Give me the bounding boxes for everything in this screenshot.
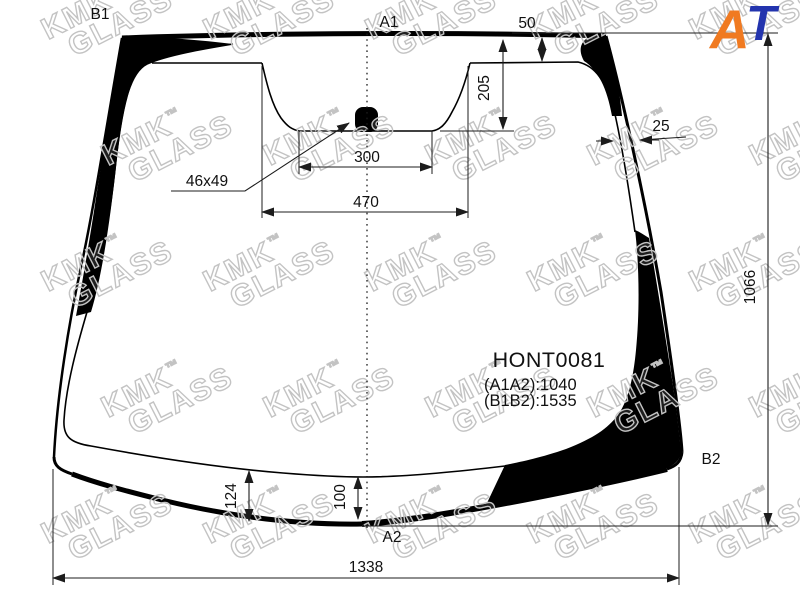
part-code: HONT0081: [493, 348, 606, 372]
dim-205: 205: [476, 75, 493, 101]
dim-124: 124: [223, 483, 240, 509]
dim-25: 25: [652, 118, 669, 135]
part-spec-b1b2: (B1B2):1535: [484, 392, 577, 410]
dim-50: 50: [518, 15, 536, 32]
at-logo-letter-t: T: [746, 0, 780, 51]
dim-300: 300: [354, 149, 380, 166]
label-a1: A1: [380, 14, 399, 31]
dim-1066: 1066: [742, 270, 759, 304]
label-b2: B2: [702, 451, 721, 468]
dim-1338: 1338: [349, 559, 383, 576]
dim-46x49: 46x49: [186, 173, 228, 190]
at-logo-letter-a: A: [708, 0, 750, 60]
label-b1: B1: [91, 6, 110, 23]
dim-100: 100: [332, 484, 349, 510]
windshield-diagram-page: KMK™ GLASS: [0, 0, 800, 600]
dim-470: 470: [353, 194, 379, 211]
windshield-diagram: KMK™ GLASS: [0, 0, 800, 600]
label-a2: A2: [383, 529, 402, 546]
